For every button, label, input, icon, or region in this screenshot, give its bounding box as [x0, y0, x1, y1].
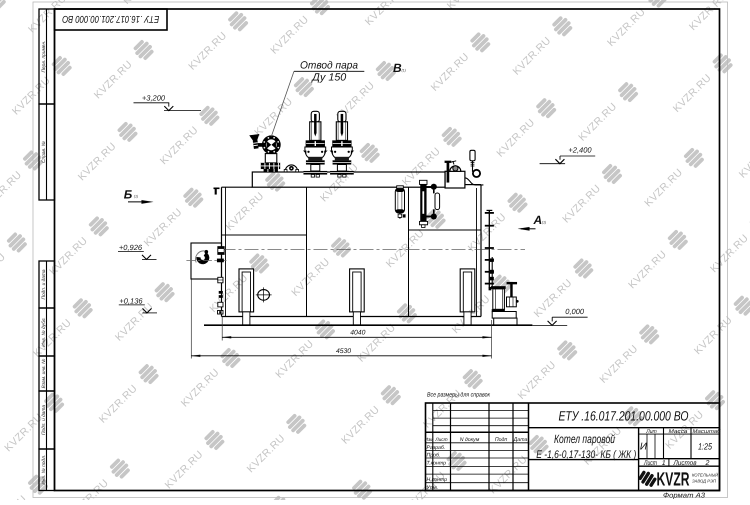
svg-text:Утв.: Утв.	[427, 485, 439, 491]
svg-text:Инв. № подл.: Инв. № подл.	[41, 455, 47, 485]
svg-text:Котел паровой: Котел паровой	[554, 432, 615, 446]
svg-text:И: И	[640, 442, 648, 453]
svg-text:0,000: 0,000	[565, 307, 585, 316]
svg-text:Лист: Лист	[643, 460, 657, 467]
svg-text:4530: 4530	[336, 348, 351, 355]
svg-text:ЕТУ .16.017.201.00.000 ВО: ЕТУ .16.017.201.00.000 ВО	[62, 13, 159, 24]
svg-text:Масштаб: Масштаб	[693, 428, 722, 435]
svg-text:Проб.: Проб.	[427, 452, 441, 458]
svg-text:Изм: Изм	[425, 437, 435, 443]
svg-text:4040: 4040	[350, 330, 365, 337]
svg-text:1: 1	[662, 460, 666, 467]
svg-text:Подп: Подп	[495, 437, 508, 443]
svg-text:Б: Б	[124, 187, 133, 201]
svg-text:2: 2	[705, 460, 710, 467]
svg-text:Формат А3: Формат А3	[663, 492, 705, 499]
svg-text:1:25: 1:25	[698, 442, 713, 452]
svg-text:ЗАВОД РЭП: ЗАВОД РЭП	[692, 479, 717, 484]
svg-text:А: А	[532, 213, 542, 227]
svg-text:Справ. №: Справ. №	[41, 140, 47, 163]
svg-text:Разраб.: Разраб.	[427, 445, 446, 451]
svg-text:Взам. инв. №: Взам. инв. №	[41, 358, 47, 388]
svg-text:Отвод пара: Отвод пара	[300, 60, 358, 72]
svg-text:Дата: Дата	[513, 437, 528, 443]
svg-text:Лит: Лит	[645, 429, 657, 435]
svg-text:Н.контр: Н.контр	[427, 477, 448, 483]
svg-text:Лист: Лист	[434, 437, 447, 443]
svg-text:+3,200: +3,200	[142, 93, 166, 102]
svg-text:(1): (1)	[134, 194, 138, 198]
svg-text:(1): (1)	[542, 220, 546, 224]
svg-text:KVZR: KVZR	[657, 470, 690, 491]
svg-text:Масса: Масса	[669, 429, 688, 435]
svg-text:+2,400: +2,400	[568, 146, 592, 155]
svg-text:(1): (1)	[401, 69, 405, 73]
svg-text:Листов: Листов	[673, 460, 697, 467]
svg-text:Подп. и дата: Подп. и дата	[41, 405, 47, 435]
svg-text:Ду 150: Ду 150	[311, 72, 346, 84]
svg-text:Е -1,6-0,17-130- КБ ( ЖК ): Е -1,6-0,17-130- КБ ( ЖК )	[536, 449, 636, 461]
svg-text:+0,926: +0,926	[119, 243, 143, 252]
svg-text:Инв. № дубл.: Инв. № дубл.	[41, 317, 47, 347]
svg-text:Подп. и дата: Подп. и дата	[41, 269, 47, 299]
svg-text:Все размеры для справок: Все размеры для справок	[427, 391, 491, 398]
svg-text:ЕТУ .16.017.201.00.000 ВО: ЕТУ .16.017.201.00.000 ВО	[559, 409, 689, 424]
svg-text:N докум: N докум	[460, 437, 480, 443]
svg-text:Перв. примен.: Перв. примен.	[41, 41, 47, 73]
svg-text:КОТЕЛЬНЫЙ: КОТЕЛЬНЫЙ	[692, 473, 718, 478]
svg-text:+0,136: +0,136	[119, 296, 143, 305]
svg-text:Т.контр: Т.контр	[427, 460, 447, 466]
